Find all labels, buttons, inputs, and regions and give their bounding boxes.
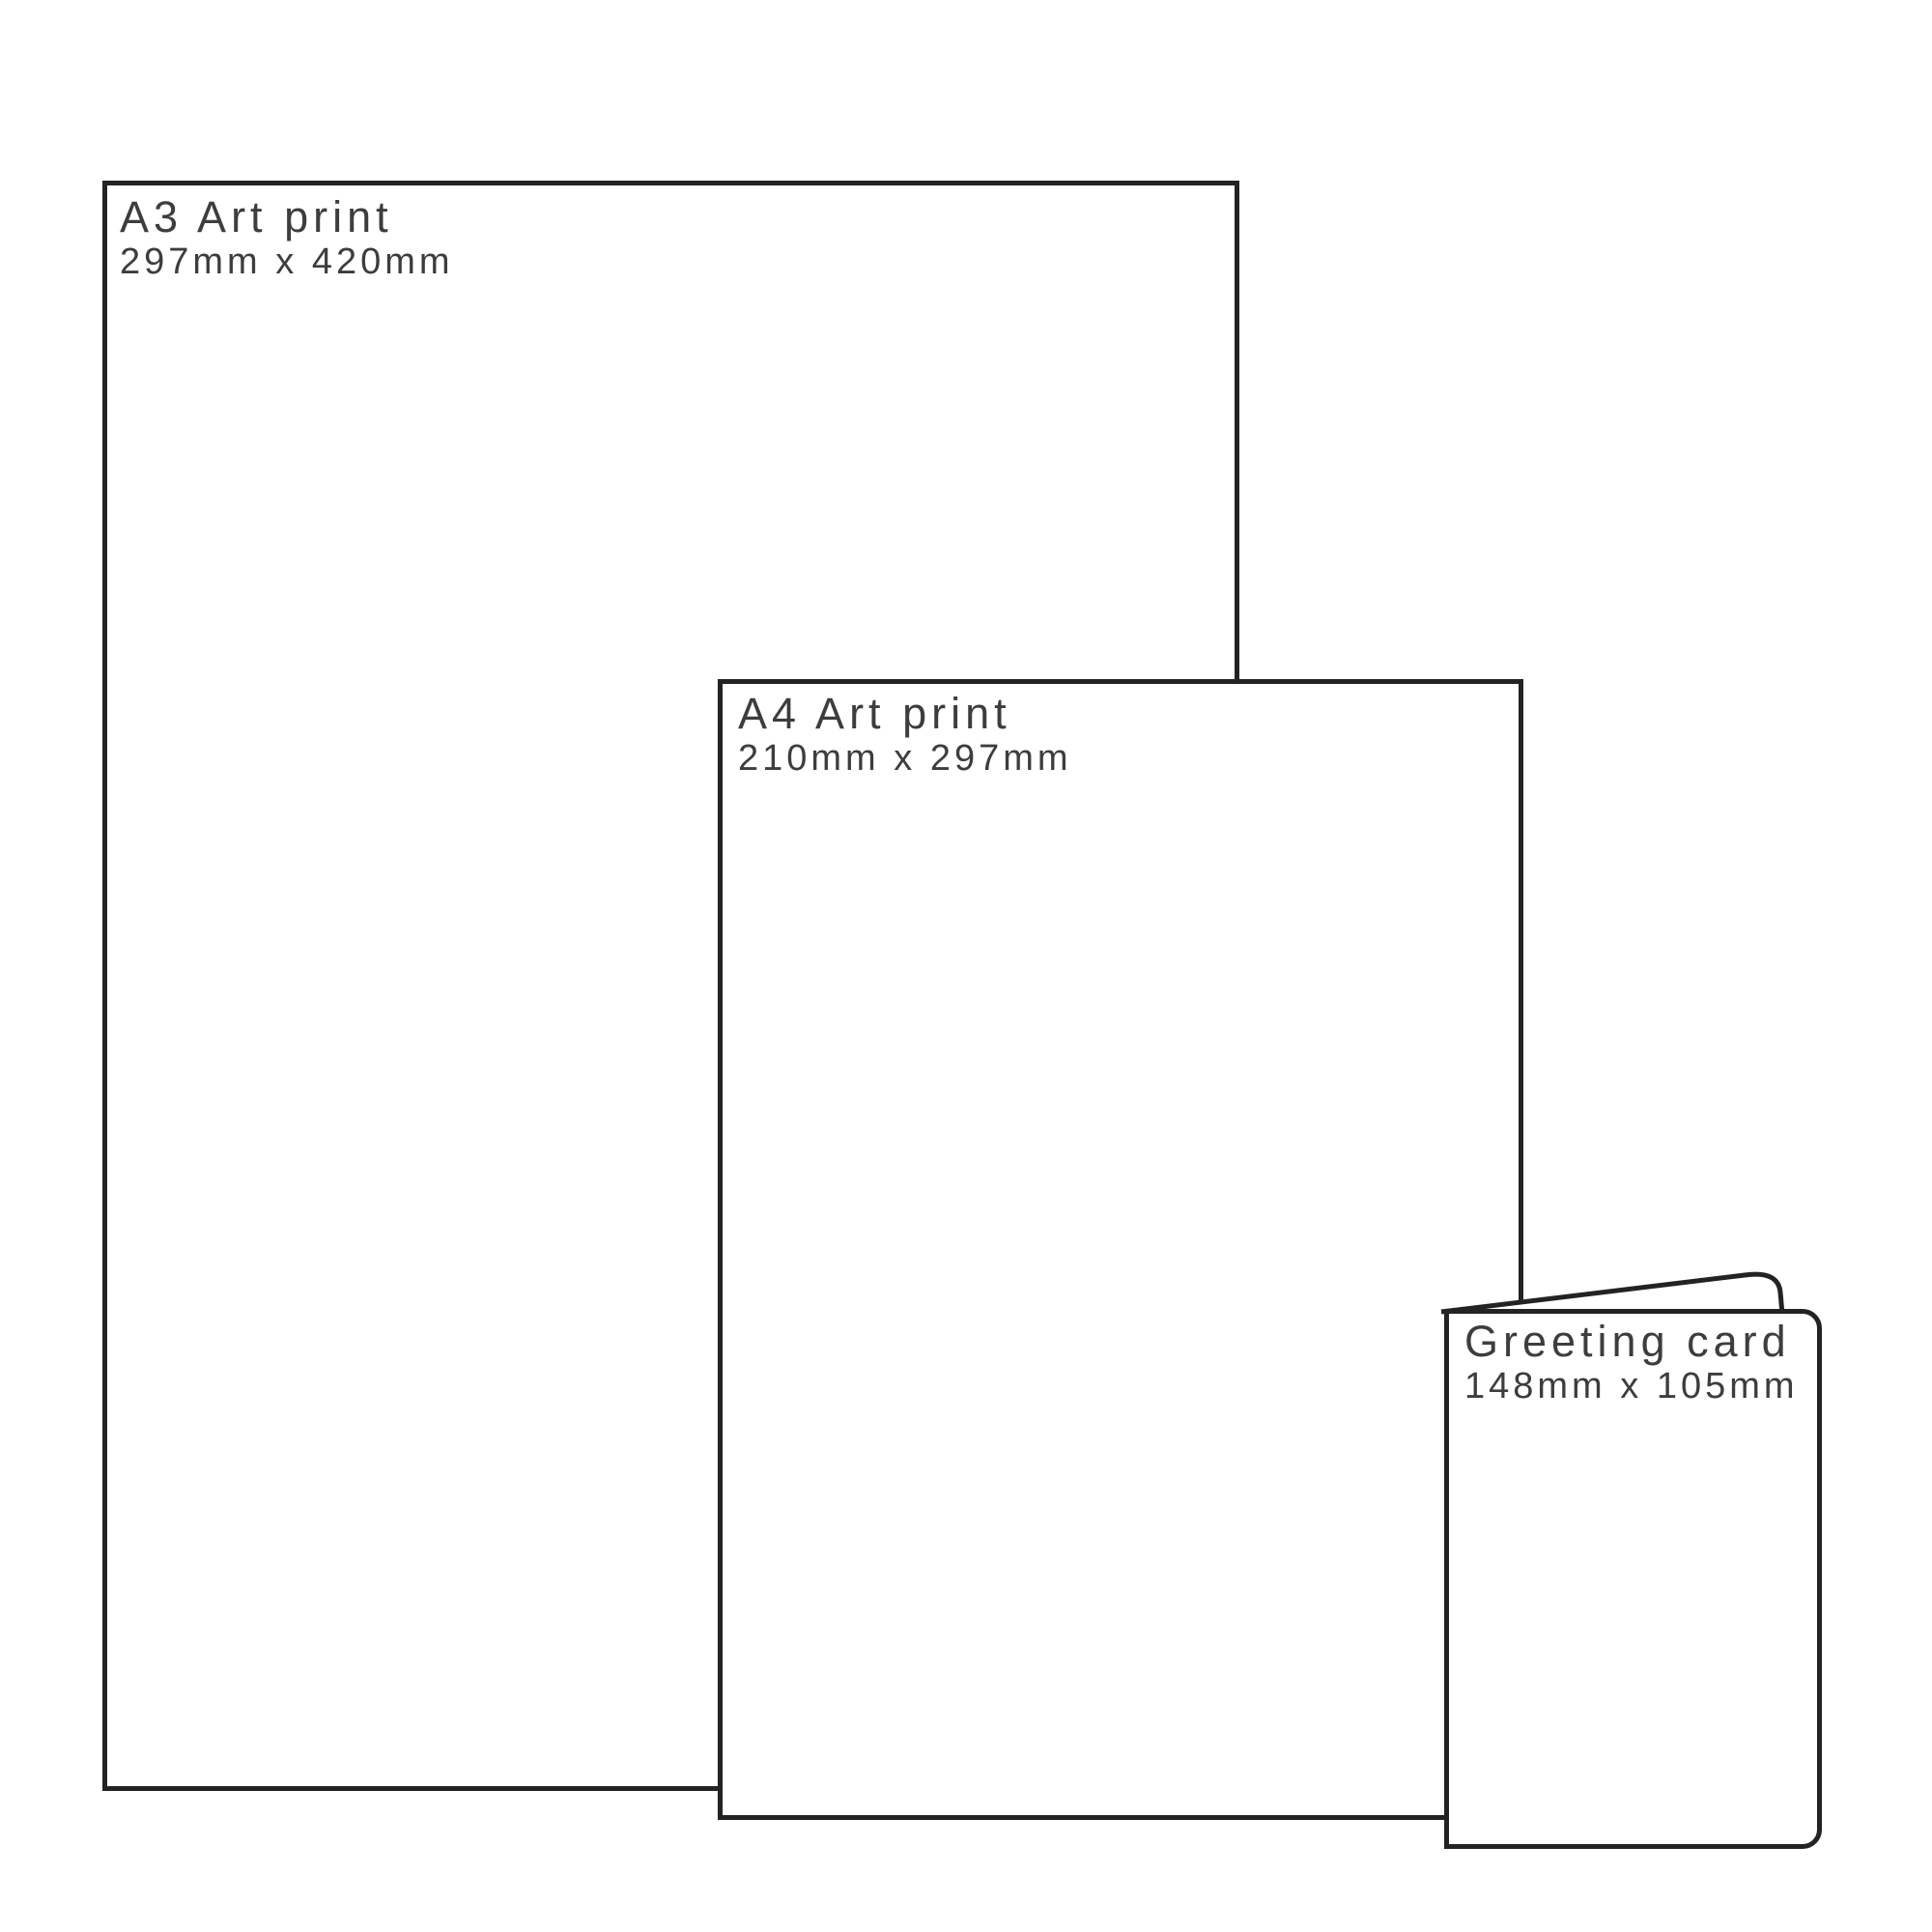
a4-label: A4 Art print 210mm x 297mm — [738, 689, 1072, 778]
size-comparison-graphic: A3 Art print 297mm x 420mm A4 Art print … — [0, 0, 1932, 1932]
greeting-card-dimensions: 148mm x 105mm — [1464, 1367, 1799, 1406]
a4-dimensions: 210mm x 297mm — [738, 739, 1072, 778]
a3-title: A3 Art print — [120, 192, 454, 242]
a4-title: A4 Art print — [738, 689, 1072, 739]
a3-label: A3 Art print 297mm x 420mm — [120, 192, 454, 281]
a3-dimensions: 297mm x 420mm — [120, 242, 454, 281]
greeting-card-title: Greeting card — [1464, 1317, 1799, 1367]
greeting-card-label: Greeting card 148mm x 105mm — [1464, 1317, 1799, 1406]
